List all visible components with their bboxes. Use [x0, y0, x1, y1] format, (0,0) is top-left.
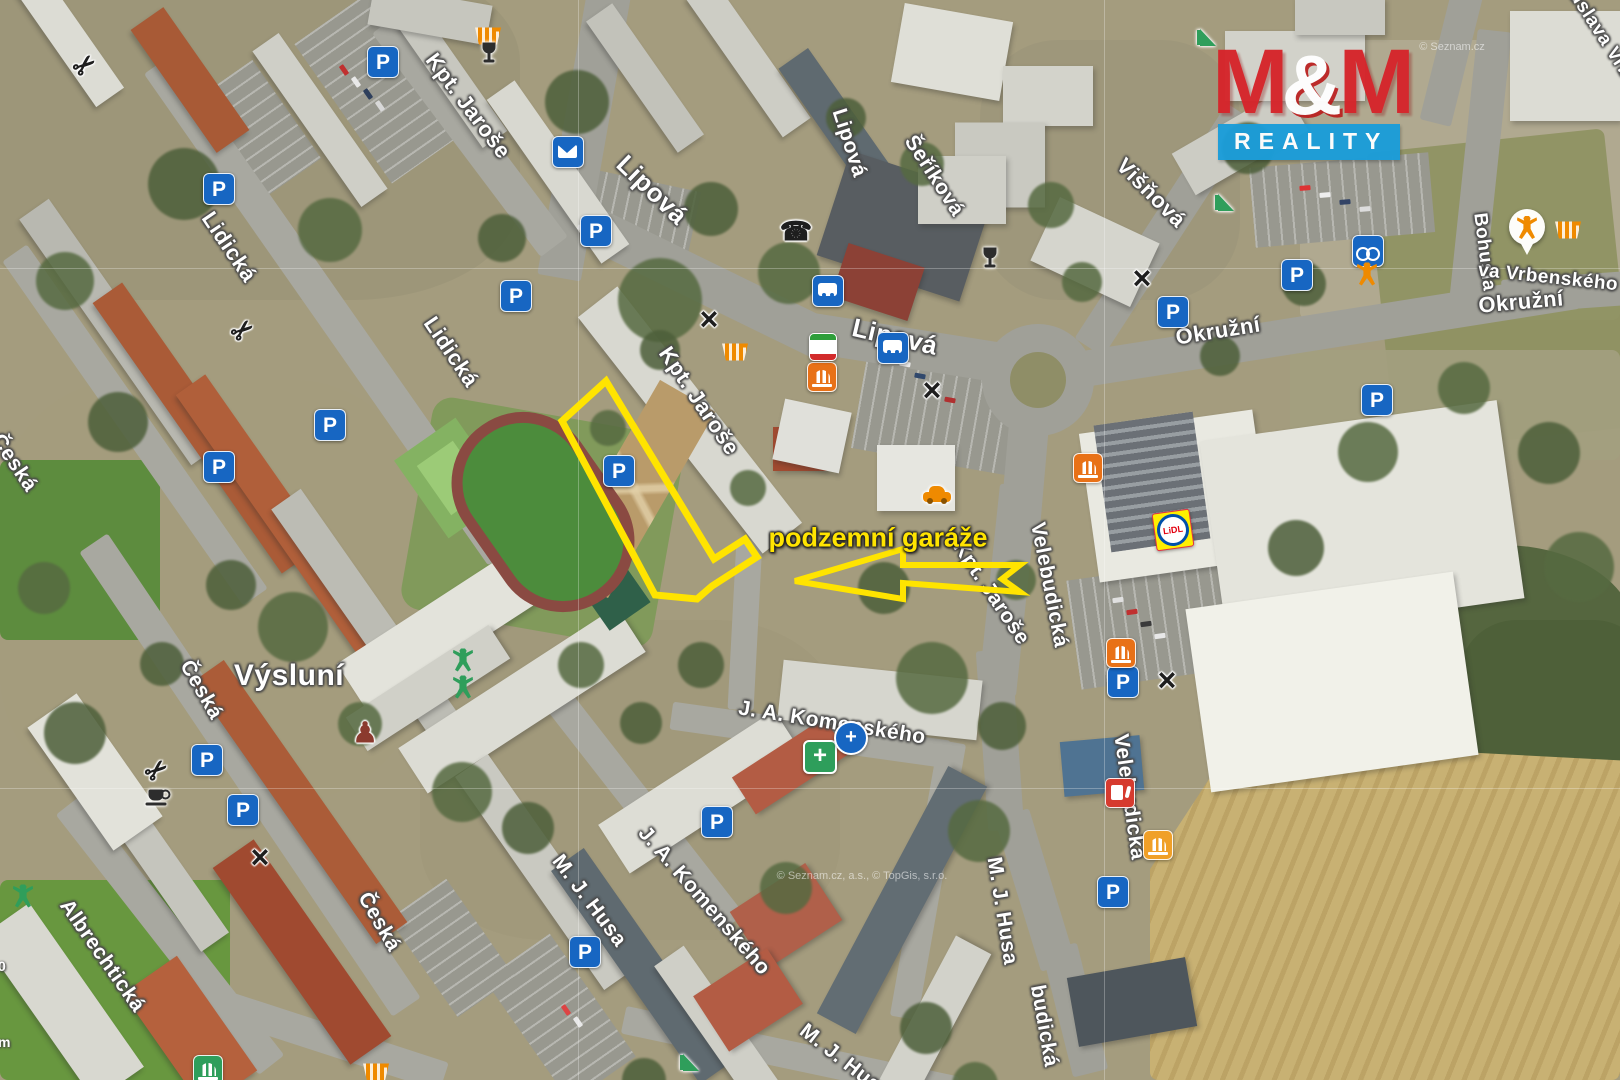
hairdresser-icon[interactable]: ✂ [74, 53, 97, 80]
parking-icon[interactable]: P [203, 451, 235, 483]
parking-icon[interactable]: P [1097, 876, 1129, 908]
parking-icon[interactable]: P [191, 744, 223, 776]
shop-arch-icon[interactable] [1143, 830, 1173, 860]
shop-arch-icon[interactable] [1073, 453, 1103, 483]
parking-icon[interactable]: P [580, 215, 612, 247]
map-watermark: © Seznam.cz [1419, 41, 1485, 53]
map-canvas[interactable]: podzemní garáže LipováLipováLipováŠeříko… [0, 0, 1620, 1080]
hairdresser-icon[interactable]: ✂ [232, 318, 255, 345]
parking-icon[interactable]: P [1281, 259, 1313, 291]
bus-stop-icon[interactable] [877, 332, 909, 364]
shopping-basket-icon[interactable] [1555, 222, 1581, 239]
lidl-logo-icon[interactable]: LiDL [1152, 509, 1195, 552]
restaurant-icon[interactable]: × [251, 841, 270, 873]
car-dealer-icon[interactable] [923, 492, 951, 502]
post-office-icon[interactable] [552, 136, 584, 168]
playground-icon[interactable] [1215, 192, 1239, 214]
parking-icon[interactable]: P [569, 936, 601, 968]
parking-icon[interactable]: P [203, 173, 235, 205]
sport-pin-icon[interactable] [1507, 209, 1547, 257]
restaurant-icon[interactable]: × [1158, 664, 1177, 696]
mm-reality-logo: M&M REALITY [1212, 36, 1406, 160]
parking-icon[interactable]: P [367, 46, 399, 78]
phone-icon[interactable]: ☎ [780, 218, 812, 244]
monument-icon[interactable]: ♟ [352, 719, 377, 747]
annotation-polygon [562, 381, 757, 599]
restaurant-icon[interactable]: × [700, 303, 719, 335]
bus-stop-icon[interactable] [812, 275, 844, 307]
playground-icon[interactable] [680, 1052, 704, 1074]
pharmacy-icon[interactable]: + [803, 740, 837, 774]
annotation-arrow [795, 549, 1020, 599]
parking-icon[interactable]: P [701, 806, 733, 838]
gas-station-icon[interactable] [1105, 778, 1135, 808]
scale-label: m [0, 1034, 10, 1050]
restaurant-icon[interactable]: × [923, 374, 942, 406]
medical-icon[interactable]: + [834, 721, 868, 755]
shop-arch-icon[interactable] [807, 362, 837, 392]
scale-label: 0 [0, 958, 6, 974]
kiosk-icon[interactable] [193, 1055, 223, 1080]
parking-icon[interactable]: P [1361, 384, 1393, 416]
shopping-basket-icon[interactable] [722, 344, 748, 361]
parking-icon[interactable]: P [500, 280, 532, 312]
parking-icon[interactable]: P [1107, 666, 1139, 698]
annotation-label: podzemní garáže [768, 523, 987, 554]
cafe-icon[interactable] [149, 790, 164, 801]
parking-icon[interactable]: P [314, 409, 346, 441]
parking-icon[interactable]: P [1157, 296, 1189, 328]
restaurant-icon[interactable]: × [1133, 262, 1152, 294]
shop-arch-icon[interactable] [1106, 638, 1136, 668]
shop-striped-icon[interactable] [809, 333, 837, 361]
parking-icon[interactable]: P [227, 794, 259, 826]
hairdresser-icon[interactable]: ✂ [146, 758, 169, 785]
logo-mm: M&M [1212, 36, 1406, 128]
logo-ampersand: & [1282, 42, 1343, 128]
bicycle-icon[interactable] [1352, 235, 1384, 267]
map-watermark: © Seznam.cz, a.s., © TopGis, s.r.o. [777, 870, 948, 882]
parking-icon[interactable]: P [603, 455, 635, 487]
shopping-basket-icon[interactable] [363, 1064, 389, 1080]
